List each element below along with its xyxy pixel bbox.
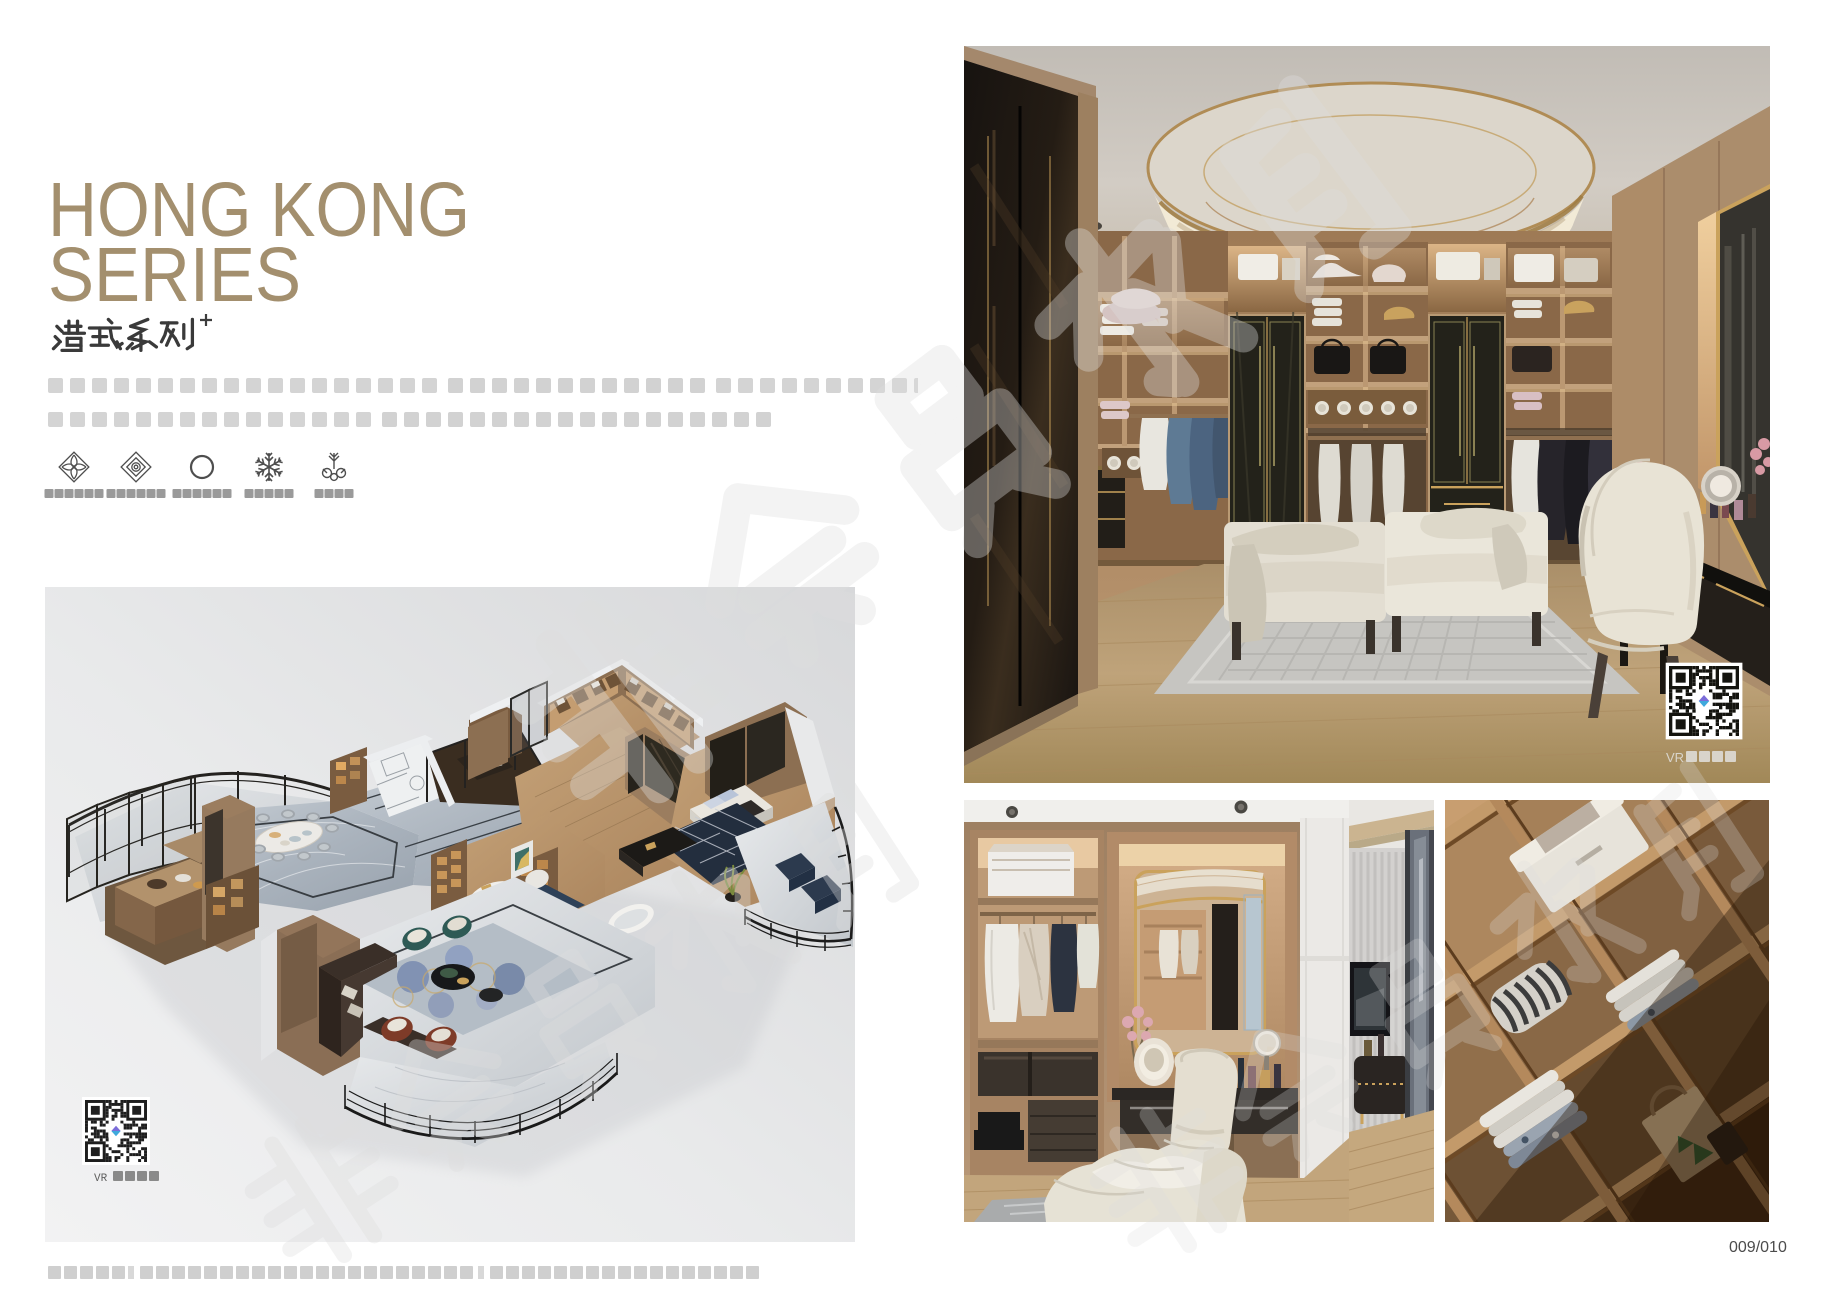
svg-text:SERIES: SERIES xyxy=(48,232,301,318)
svg-text:VR: VR xyxy=(94,1173,108,1185)
svg-text:VR: VR xyxy=(1666,750,1684,765)
svg-text:009/010: 009/010 xyxy=(1729,1239,1787,1256)
